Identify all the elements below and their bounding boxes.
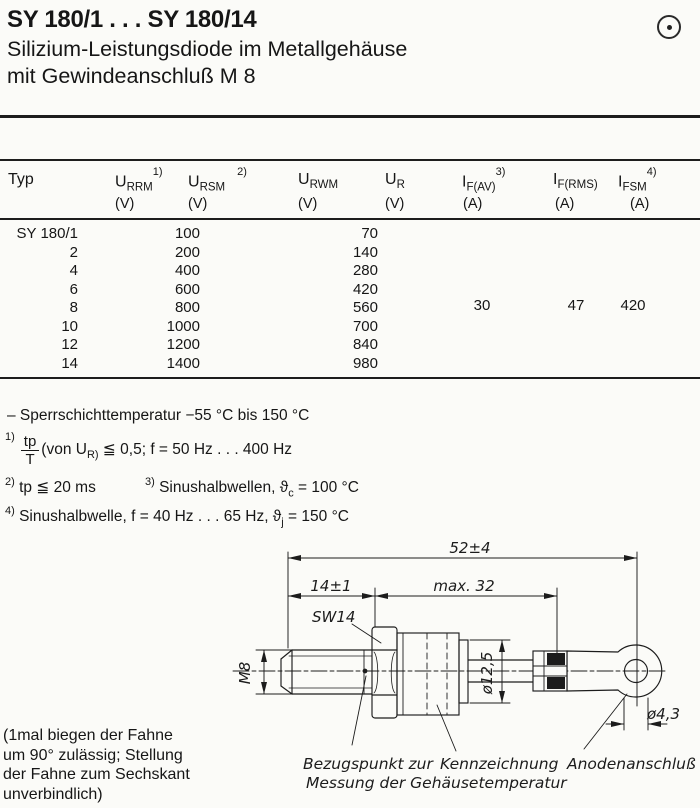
table-cell: 1400	[100, 355, 200, 374]
hex-nut	[363, 627, 397, 718]
crimp-sleeve	[533, 651, 567, 691]
anode-label: Anodenanschluß	[566, 755, 696, 773]
marking-leader	[437, 705, 456, 751]
urwm-ur-column: 70 140 280 420 560 700 840 980	[278, 225, 378, 373]
col-header-ursm: URSM2)	[188, 171, 247, 194]
table-cell: 400	[100, 262, 200, 281]
table-row: 14	[8, 355, 78, 374]
col-unit-ursm: (V)	[188, 196, 207, 212]
if-rms-value: 47	[559, 297, 593, 314]
table-row: 10	[8, 318, 78, 337]
col-unit-ur: (V)	[385, 196, 404, 212]
circled-dot-icon	[657, 15, 681, 39]
ifsm-value: 420	[613, 297, 653, 314]
anode-leader	[584, 694, 627, 749]
table-cell: 1200	[100, 336, 200, 355]
table-row: 12	[8, 336, 78, 355]
table-cell: 980	[278, 355, 378, 374]
table-top-rule	[0, 159, 700, 161]
ref-point-label-line1: Bezugspunkt zur	[303, 755, 434, 773]
footnote-1: 1) tp T (von UR) ≦ 0,5; f = 50 Hz . . . …	[5, 434, 292, 467]
svg-text:SW14: SW14	[312, 608, 355, 626]
table-row: 6	[8, 281, 78, 300]
marking-label: Kennzeichnung	[440, 755, 559, 773]
table-row: 8	[8, 299, 78, 318]
table-cell: 140	[278, 244, 378, 263]
svg-text:52±4: 52±4	[449, 539, 490, 557]
case-temp-reference-dot	[363, 669, 368, 674]
diode-outline-drawing: 52±4 14±1 max. 32 M8	[228, 535, 700, 805]
table-cell: 70	[278, 225, 378, 244]
col-header-ur: UR	[385, 171, 405, 191]
svg-text:14±1: 14±1	[310, 577, 351, 595]
wrench-size-label: SW14	[312, 608, 381, 643]
urrm-ursm-column: 100 200 400 600 800 1000 1200 1400	[100, 225, 200, 373]
table-bottom-rule	[0, 377, 700, 379]
table-cell: 1000	[100, 318, 200, 337]
table-cell: 560	[278, 299, 378, 318]
col-unit-urwm: (V)	[298, 196, 317, 212]
threaded-stud	[281, 650, 372, 694]
table-cell: 200	[100, 244, 200, 263]
col-header-ifav: IF(AV)3)	[462, 171, 505, 194]
col-unit-ifrms: (A)	[555, 196, 574, 212]
ref-point-leader	[352, 676, 366, 745]
footnote-2: 2) tp ≦ 20 ms	[5, 477, 96, 497]
col-unit-ifav: (A)	[463, 196, 482, 212]
footnote-1-text: (von UR) ≦ 0,5; f = 50 Hz . . . 400 Hz	[41, 440, 292, 461]
table-cell: 420	[278, 281, 378, 300]
table-cell: 840	[278, 336, 378, 355]
header-rule	[0, 115, 700, 118]
ref-point-label-line2: Messung der Gehäusetemperatur	[306, 774, 568, 792]
type-column: SY 180/1 2 4 6 8 10 12 14	[8, 225, 78, 373]
col-header-urrm: URRM1)	[115, 171, 163, 194]
table-header-rule	[0, 218, 700, 220]
table-cell: 100	[100, 225, 200, 244]
bend-note: (1mal biegen der Fahne um 90° zulässig; …	[3, 726, 190, 804]
footnote-4: 4) Sinushalbwelle, f = 40 Hz . . . 65 Hz…	[5, 506, 349, 528]
page-subtitle-line1: Silizium-Leistungsdiode im Metallgehäuse	[7, 36, 407, 63]
junction-temp-note: – Sperrschichttemperatur −55 °C bis 150 …	[7, 407, 309, 425]
table-cell: 800	[100, 299, 200, 318]
page-subtitle-line2: mit Gewindeanschluß M 8	[7, 63, 256, 90]
page-title: SY 180/1 . . . SY 180/14	[7, 6, 256, 34]
table-cell: 280	[278, 262, 378, 281]
case-body	[397, 633, 468, 715]
svg-text:ø4,3: ø4,3	[646, 705, 680, 723]
footnote-1-mark: 1)	[5, 431, 15, 443]
tp-over-T-fraction: tp T	[21, 434, 40, 467]
dim-hole-diameter: ø4,3	[606, 698, 680, 730]
footnote-3: 3) Sinushalbwellen, ϑc = 100 °C	[145, 477, 359, 499]
table-cell: 700	[278, 318, 378, 337]
table-row: SY 180/1	[8, 225, 78, 244]
datasheet-page: SY 180/1 . . . SY 180/14 Silizium-Leistu…	[0, 0, 700, 808]
if-av-value: 30	[465, 297, 499, 314]
col-header-urwm: URWM	[298, 171, 338, 191]
dim-flange-diameter: ø12,5	[470, 640, 510, 703]
svg-text:max. 32: max. 32	[433, 577, 494, 595]
table-row: 4	[8, 262, 78, 281]
svg-text:M8: M8	[236, 662, 254, 685]
case-flange	[459, 640, 468, 703]
col-header-ifsm: IFSM4)	[618, 171, 657, 194]
col-unit-urrm: (V)	[115, 196, 134, 212]
table-row: 2	[8, 244, 78, 263]
col-header-typ: Typ	[8, 171, 34, 189]
col-header-ifrms: IF(RMS)	[553, 171, 598, 191]
table-cell: 600	[100, 281, 200, 300]
col-unit-ifsm: (A)	[630, 196, 649, 212]
svg-text:ø12,5: ø12,5	[478, 652, 496, 696]
